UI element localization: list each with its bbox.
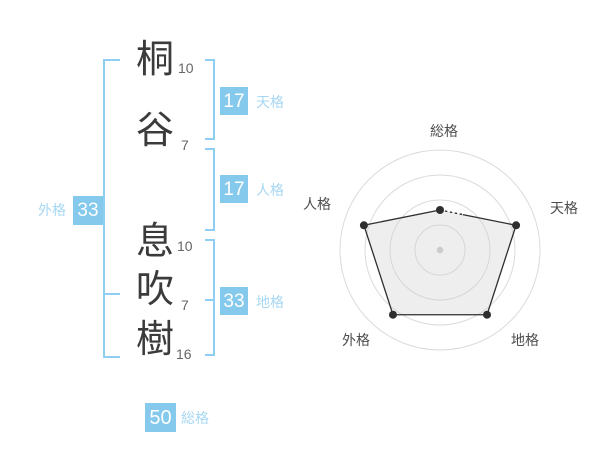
chikaku-value-box: 33 <box>220 287 248 315</box>
tenkaku-value-box: 17 <box>220 87 248 115</box>
gaikaku-label: 外格 <box>38 203 66 217</box>
chikaku-label: 地格 <box>256 295 284 309</box>
stroke-count-2: 7 <box>181 138 189 152</box>
bracket-segment <box>205 148 215 150</box>
stroke-count-3: 10 <box>177 239 193 253</box>
name-analysis-screen: 桐 谷 息 吹 樹 10 7 10 7 16 17 天格 17 人格 33 地格… <box>0 0 600 470</box>
stroke-count-5: 16 <box>176 347 192 361</box>
name-char-5: 樹 <box>133 321 177 359</box>
radar-svg: 総格天格地格外格人格 <box>290 112 590 362</box>
bracket-segment <box>103 59 105 358</box>
bracket-segment <box>205 239 215 241</box>
name-char-3: 息 <box>133 223 177 261</box>
bracket-segment <box>103 59 120 61</box>
radar-data-point <box>389 311 397 319</box>
bracket-segment <box>205 59 215 61</box>
gaikaku-value-box: 33 <box>73 196 103 225</box>
name-char-4: 吹 <box>133 271 177 309</box>
name-char-1: 桐 <box>133 41 177 79</box>
radar-data-point <box>360 221 368 229</box>
kaku-radar-chart: 総格天格地格外格人格 <box>290 112 590 362</box>
jinkaku-label: 人格 <box>256 183 284 197</box>
bracket-segment <box>205 299 215 301</box>
name-char-2: 谷 <box>133 112 177 150</box>
radar-data-point <box>436 206 444 214</box>
bracket-segment <box>103 356 120 358</box>
radar-data-point <box>483 311 491 319</box>
bracket-segment <box>103 293 120 295</box>
radar-axis-label: 天格 <box>550 200 578 216</box>
soukaku-value-box: 50 <box>145 403 176 432</box>
stroke-count-1: 10 <box>178 61 194 75</box>
bracket-segment <box>205 354 215 356</box>
jinkaku-value-box: 17 <box>220 175 248 203</box>
radar-axis-label: 外格 <box>342 332 370 348</box>
bracket-segment <box>213 239 215 356</box>
soukaku-label: 総格 <box>181 411 209 425</box>
radar-axis-label: 人格 <box>303 196 331 212</box>
radar-axis-label: 地格 <box>511 332 539 348</box>
bracket-segment <box>205 138 215 140</box>
stroke-count-4: 7 <box>181 298 189 312</box>
radar-data-point <box>512 221 520 229</box>
radar-data-fill <box>364 210 516 315</box>
radar-axis-label: 総格 <box>430 123 458 139</box>
tenkaku-label: 天格 <box>256 95 284 109</box>
bracket-segment <box>205 229 215 231</box>
bracket-segment <box>213 148 215 231</box>
bracket-segment <box>213 59 215 140</box>
